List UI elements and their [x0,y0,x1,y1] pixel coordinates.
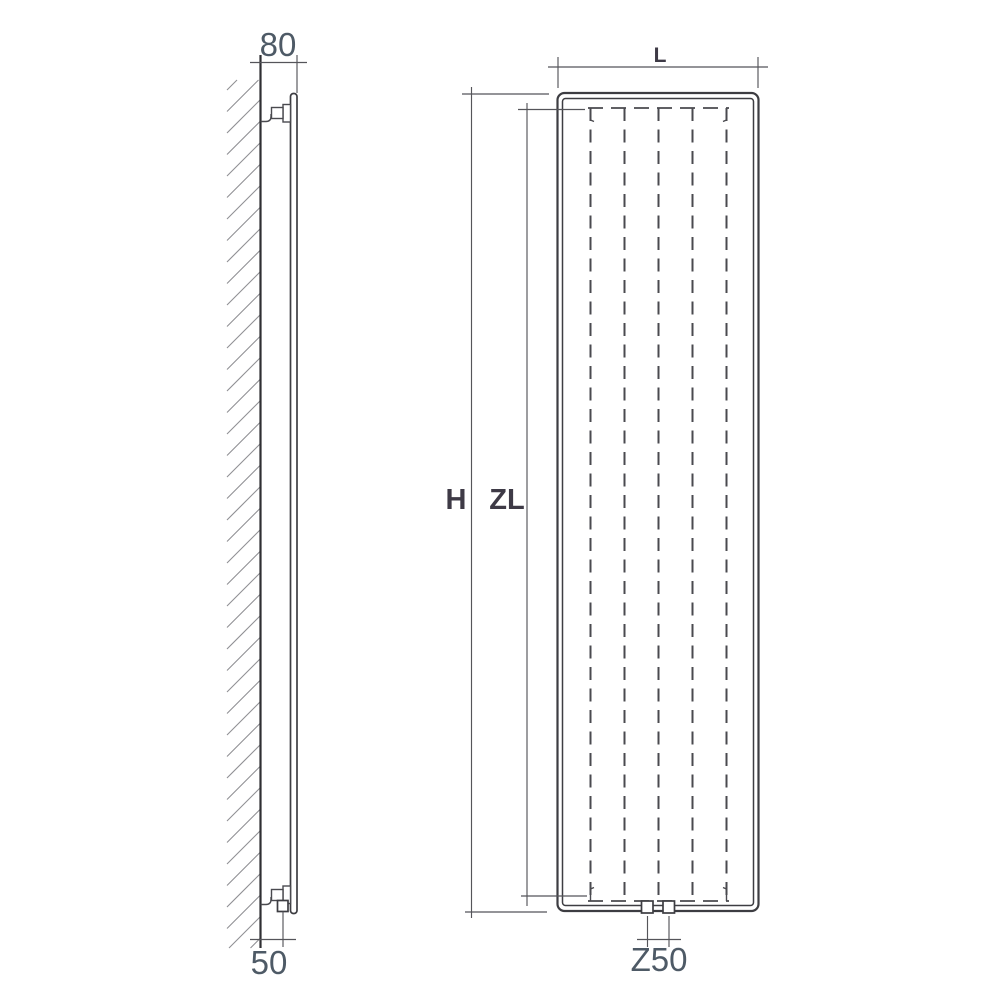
hatch-line [227,767,260,800]
hatch-line [227,595,260,628]
hatch-line [227,358,260,391]
hatch-line [227,165,260,198]
fin-hook-top-left [591,108,595,122]
hatch-line [227,896,260,929]
hatch-line [227,272,260,305]
side-connection-nozzle [278,901,289,912]
dimension-fin-height-ZL: ZL [489,103,587,906]
hatch-line [227,294,260,327]
drawing-canvas: 80 50 [0,0,1000,1000]
hatch-line [227,573,260,606]
hatch-line [227,444,260,477]
wall-hatching [227,80,260,948]
hatch-line [227,874,260,907]
hatch-line [227,229,260,262]
hatch-line [227,315,260,348]
hatch-line [227,251,260,284]
dimension-connection-Z50: Z50 [631,916,688,978]
hatch-line [227,724,260,757]
dim-label-ZL: ZL [489,484,524,516]
hatch-line [227,337,260,370]
hatch-line [227,186,260,219]
top-bracket [261,105,291,123]
bottom-bracket [261,886,291,912]
hatch-line [227,810,260,843]
radiator-panel-side [291,94,298,914]
hatch-line [227,659,260,692]
dim-label-H: H [446,484,467,516]
fin-hook-bottom-left [591,888,595,902]
fin-hook-top-right [723,108,727,122]
hatch-line [227,487,260,520]
hatch-line [227,831,260,864]
hatch-line [227,681,260,714]
top-bracket-body [272,108,284,119]
dim-label-Z50: Z50 [631,941,688,978]
hatch-line [227,788,260,821]
dim-label-50: 50 [251,944,288,981]
dimension-width-L: L [548,44,768,88]
hatch-line [227,509,260,542]
hatch-line [227,80,237,90]
connection-nozzle-right [663,901,675,913]
dimension-depth-80: 80 [250,26,307,93]
hatch-line [227,380,260,413]
hatch-line [227,702,260,735]
hatch-line [227,122,260,155]
hatch-line [227,423,260,456]
bottom-bracket-lip [261,897,272,905]
dim-label-80: 80 [260,26,297,63]
radiator-technical-drawing: 80 50 [0,0,1000,1000]
bottom-bracket-body [272,890,284,901]
hatch-line [227,745,260,778]
fin-hook-bottom-right [723,888,727,902]
hatch-line [227,466,260,499]
hatch-line [227,552,260,585]
hatch-line [227,530,260,563]
front-view: L H ZL Z50 [446,44,768,978]
convector-fins [588,108,729,901]
hatch-line [227,143,260,176]
dimension-offset-50: 50 [250,912,296,982]
hatch-line [227,616,260,649]
hatch-line [227,401,260,434]
hatch-line [227,853,260,886]
top-bracket-lip [261,114,272,122]
hatch-line [227,208,260,241]
dim-label-L: L [654,44,667,67]
hatch-line [227,100,260,133]
connection-nozzle-left [642,901,654,913]
side-view: 80 50 [227,26,307,981]
top-bracket-plate [283,105,291,123]
hatch-line [227,638,260,671]
